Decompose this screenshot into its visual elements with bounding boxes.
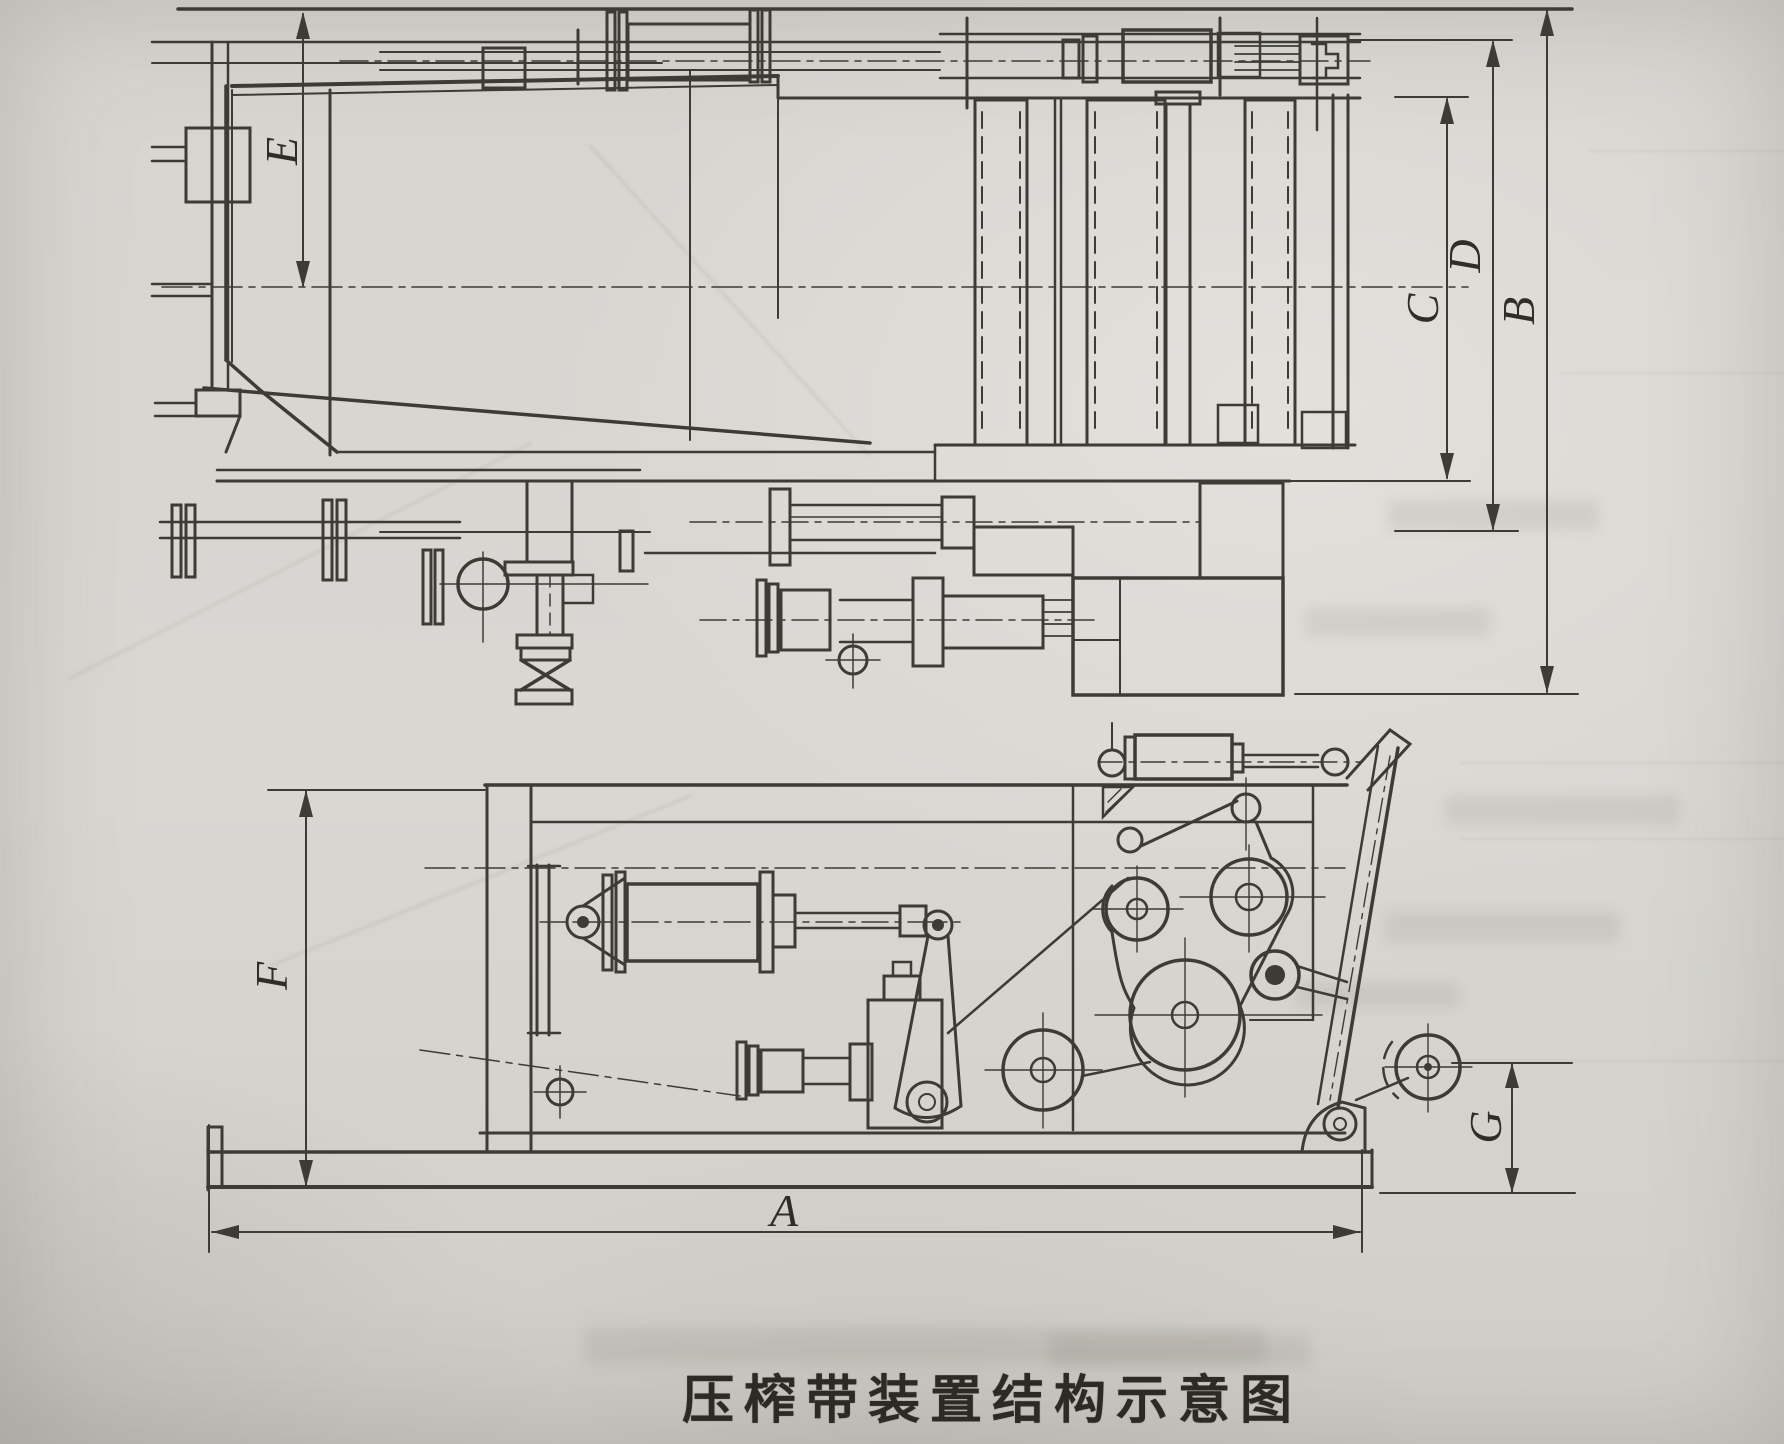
lower-view — [208, 723, 1472, 1190]
pulley-cluster — [985, 778, 1472, 1128]
plan-frame — [425, 785, 1347, 1152]
roller-sections — [975, 92, 1295, 445]
dim-label-d: D — [1442, 239, 1488, 272]
bell-crank-lever — [895, 911, 961, 1122]
dim-label-c: C — [1400, 294, 1446, 325]
press-drum — [204, 70, 1360, 481]
tracking-frame-arm — [1302, 730, 1410, 1152]
journal-shaft — [690, 483, 1283, 578]
upper-view — [152, 9, 1572, 704]
left-piping — [160, 500, 460, 624]
dim-label-a: A — [770, 1188, 798, 1234]
bearing-and-jack — [380, 481, 935, 704]
jack-plate — [517, 635, 572, 648]
drawing-sheet: E C D B F G A 压榨带装置结构示意图 — [0, 0, 1784, 1444]
dimensions — [209, 9, 1578, 1252]
pedestal — [1200, 483, 1283, 578]
coupling — [1123, 30, 1211, 82]
roller — [1087, 100, 1165, 445]
figure-caption: 压榨带装置结构示意图 — [682, 1358, 1302, 1433]
coupling — [913, 578, 943, 666]
lower-drive-shaft — [700, 578, 1100, 688]
top-tie-rod — [340, 10, 1370, 130]
scanned-page: { "figure": { "caption": "压榨带装置结构示意图", "… — [0, 0, 1784, 1444]
mount-pivot — [1099, 750, 1125, 776]
dim-F — [268, 790, 485, 1187]
spline-shaft — [1235, 46, 1300, 70]
cylinder-body — [1135, 735, 1232, 779]
dim-label-b: B — [1496, 297, 1542, 325]
dim-C — [1290, 97, 1470, 481]
gearbox — [1073, 578, 1283, 695]
dim-B — [1295, 9, 1578, 694]
pump-unit — [420, 962, 942, 1128]
piston-rod — [795, 913, 900, 928]
frame-lines — [152, 9, 1572, 481]
belt-bottom-edge — [204, 388, 870, 443]
pulley — [1118, 828, 1142, 852]
right-end-bracket — [1218, 33, 1348, 448]
belt-path — [948, 801, 1293, 1085]
dim-label-f: F — [249, 962, 295, 990]
dim-D — [1348, 40, 1518, 531]
piston-rod — [1243, 755, 1318, 767]
dim-label-g: G — [1463, 1110, 1509, 1143]
support-column — [1166, 104, 1190, 445]
schematic-drawing — [0, 0, 1784, 1444]
dim-label-e: E — [259, 137, 305, 165]
tracking-cylinder — [1098, 723, 1360, 817]
press-cylinder — [528, 865, 960, 1035]
shaft-centerline — [420, 1050, 740, 1096]
base-plate — [208, 1127, 1372, 1190]
scissor-jack — [521, 660, 570, 690]
